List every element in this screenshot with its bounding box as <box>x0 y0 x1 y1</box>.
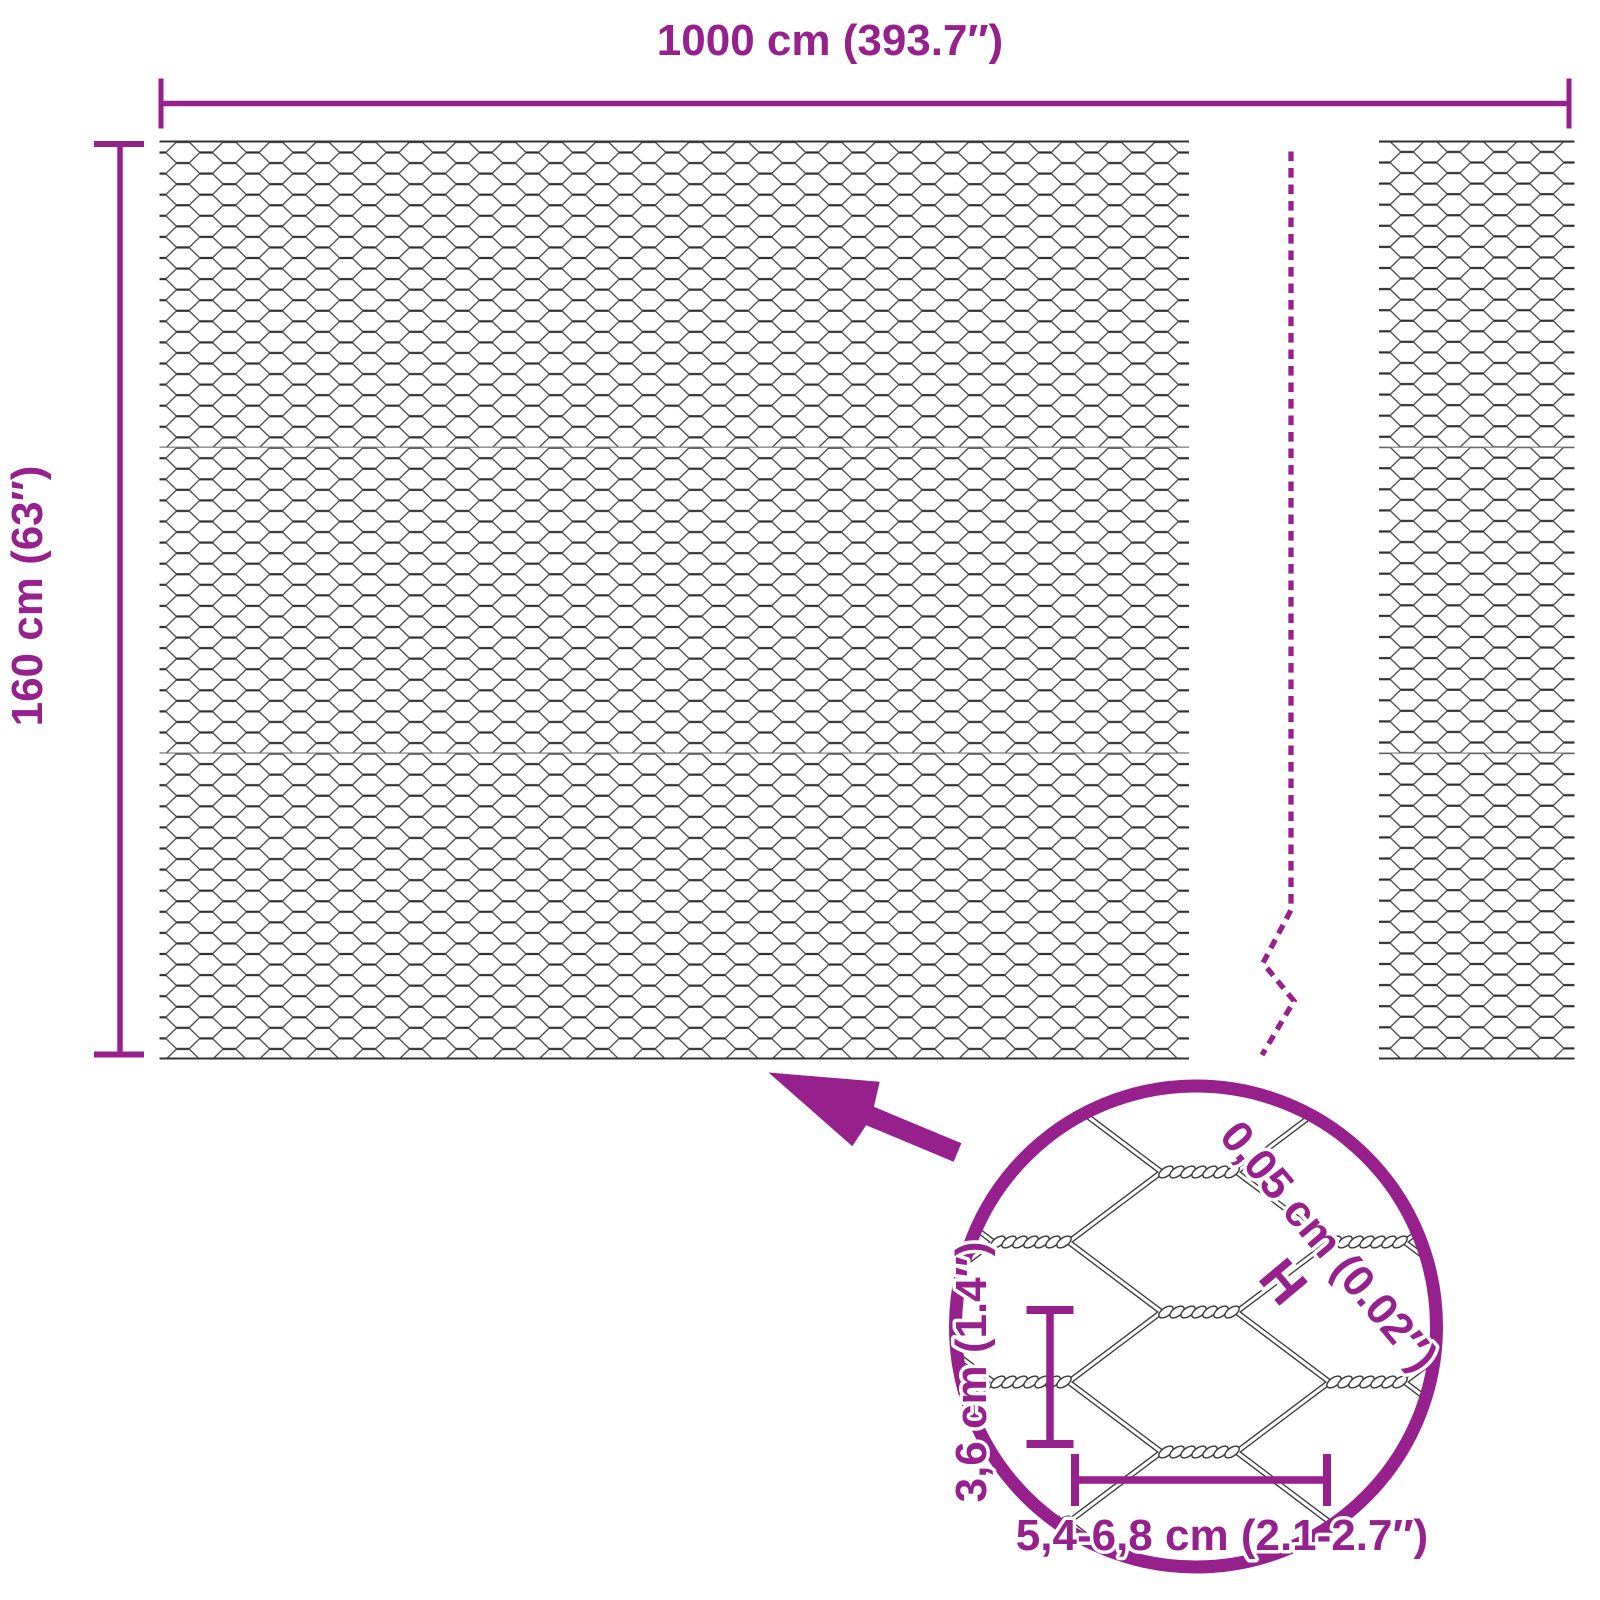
svg-text:3,6 cm (1.4″): 3,6 cm (1.4″) <box>947 1242 996 1503</box>
svg-text:5,4-6,8 cm (2.1-2.7″): 5,4-6,8 cm (2.1-2.7″) <box>1016 1511 1428 1560</box>
svg-text:160 cm (63″): 160 cm (63″) <box>3 466 52 727</box>
svg-text:1000 cm (393.7″): 1000 cm (393.7″) <box>657 16 1003 65</box>
